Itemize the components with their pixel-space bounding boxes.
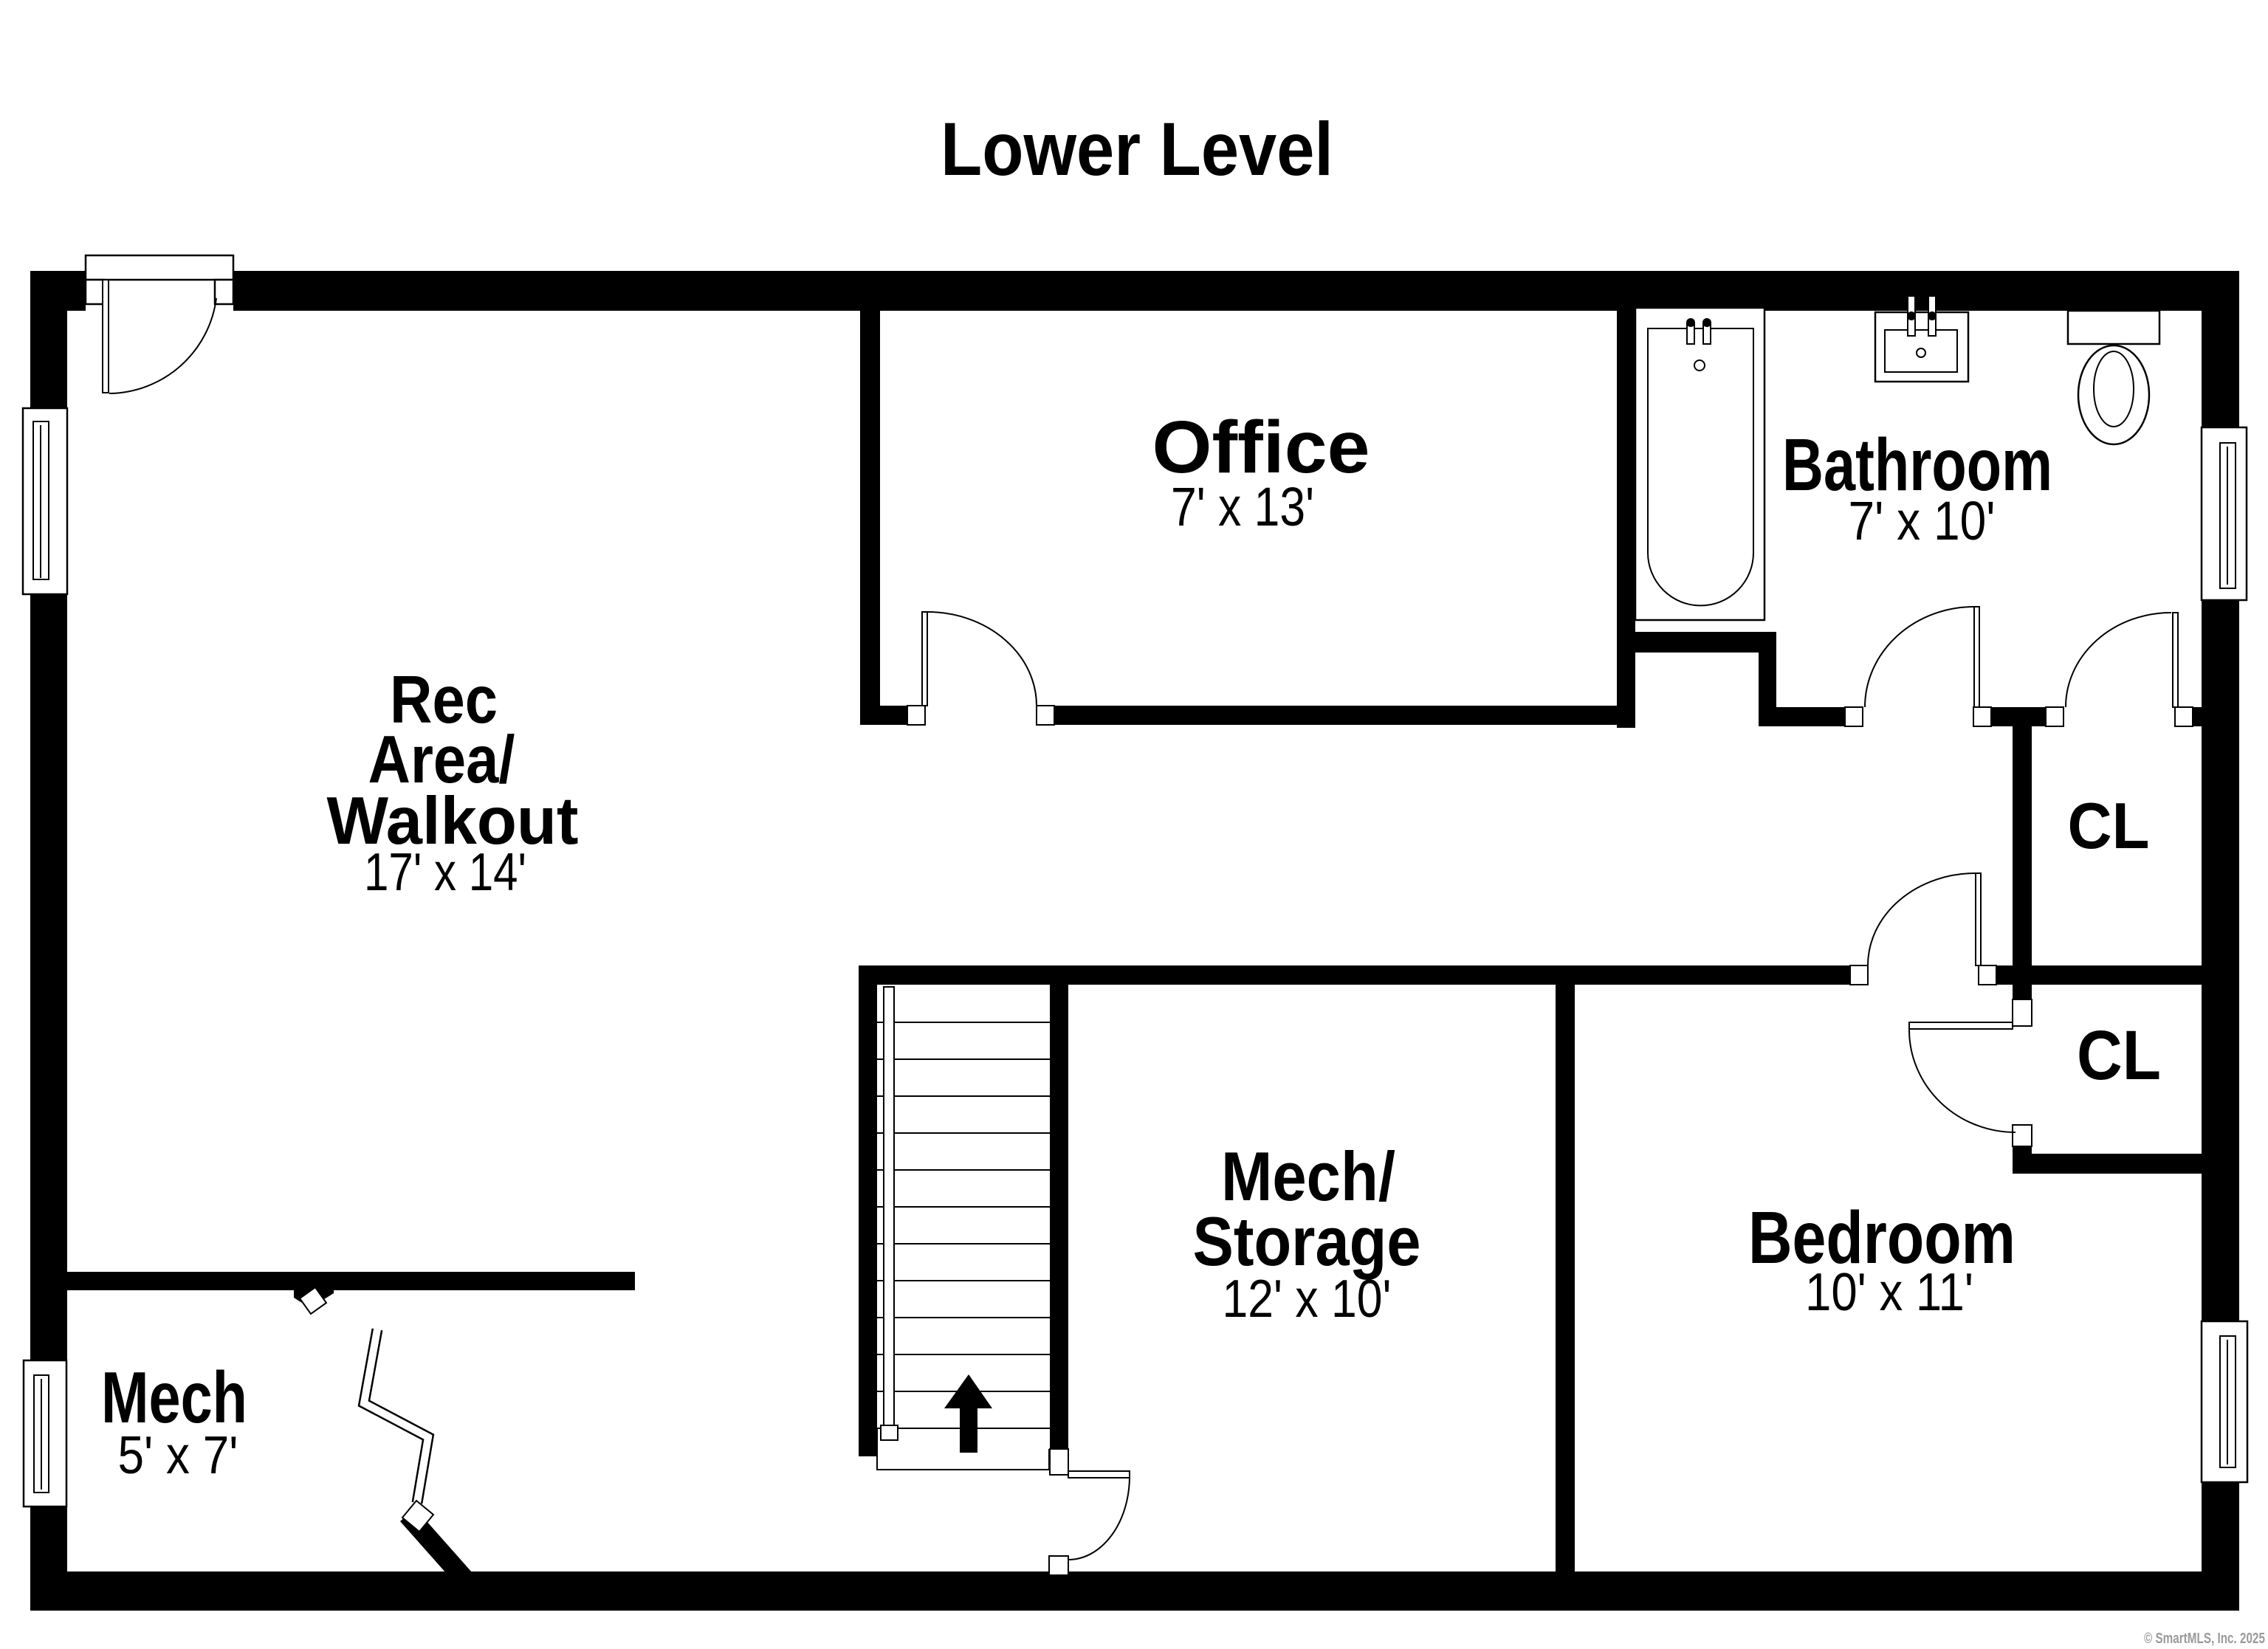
svg-text:17' x 14': 17' x 14' [364, 843, 526, 902]
svg-text:CL: CL [2077, 1016, 2161, 1095]
svg-text:CL: CL [2068, 789, 2150, 862]
svg-text:Lower Level: Lower Level [941, 107, 1333, 191]
svg-text:7' x 13': 7' x 13' [1171, 476, 1314, 537]
svg-text:7' x 10': 7' x 10' [1849, 490, 1996, 551]
svg-text:5' x 7': 5' x 7' [118, 1426, 238, 1485]
svg-text:10' x 11': 10' x 11' [1805, 1263, 1973, 1322]
svg-text:12' x 10': 12' x 10' [1223, 1270, 1392, 1329]
svg-text:© SmartMLS, Inc. 2025: © SmartMLS, Inc. 2025 [2144, 1631, 2265, 1647]
svg-text:Storage: Storage [1193, 1202, 1421, 1280]
